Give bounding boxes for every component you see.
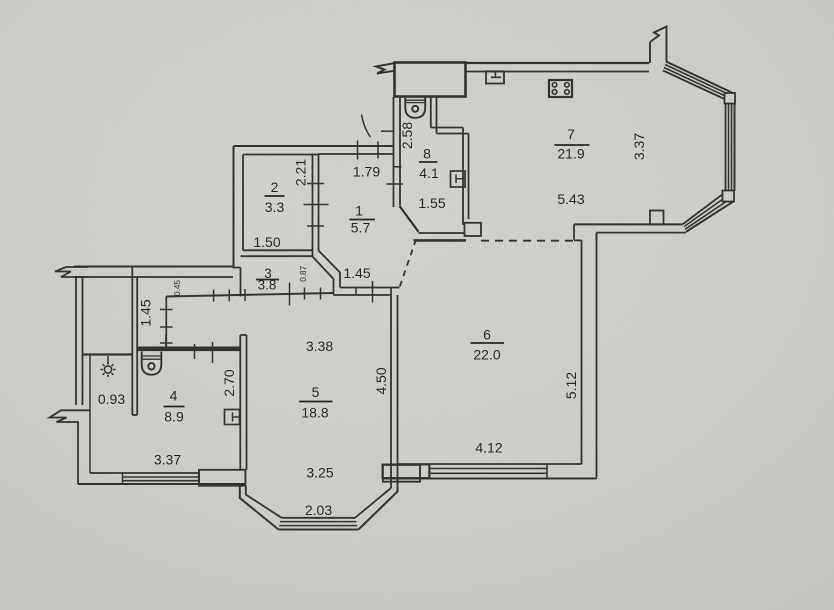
svg-text:4.50: 4.50 (373, 367, 389, 394)
svg-text:2: 2 (271, 179, 279, 195)
svg-text:0.93: 0.93 (98, 391, 125, 407)
svg-text:3.25: 3.25 (306, 465, 333, 481)
svg-text:1.45: 1.45 (138, 299, 154, 326)
svg-text:0.45: 0.45 (173, 280, 182, 296)
svg-text:5.43: 5.43 (557, 191, 584, 207)
svg-text:1.55: 1.55 (418, 195, 445, 211)
svg-text:4: 4 (170, 388, 178, 404)
svg-text:2.21: 2.21 (293, 159, 309, 186)
svg-text:18.8: 18.8 (301, 405, 328, 421)
svg-text:1.45: 1.45 (343, 265, 370, 281)
svg-text:1: 1 (355, 203, 363, 219)
svg-text:4.12: 4.12 (475, 440, 502, 456)
svg-text:4.1: 4.1 (419, 165, 439, 181)
svg-text:22.0: 22.0 (473, 347, 500, 363)
svg-text:0.87: 0.87 (299, 265, 308, 281)
svg-text:3.38: 3.38 (306, 338, 333, 354)
svg-text:5.7: 5.7 (351, 220, 371, 236)
svg-text:5.12: 5.12 (563, 372, 579, 399)
svg-text:21.9: 21.9 (557, 146, 584, 162)
svg-text:1.79: 1.79 (353, 164, 380, 180)
svg-text:3.37: 3.37 (154, 452, 181, 468)
svg-text:7: 7 (567, 126, 575, 142)
svg-text:5: 5 (312, 384, 320, 400)
svg-text:2.03: 2.03 (305, 502, 332, 518)
svg-text:3.37: 3.37 (631, 133, 647, 160)
svg-text:2.70: 2.70 (221, 369, 237, 396)
svg-text:8: 8 (423, 146, 431, 162)
svg-text:1.50: 1.50 (253, 234, 280, 250)
svg-text:3.3: 3.3 (265, 199, 285, 215)
svg-text:6: 6 (483, 327, 491, 343)
svg-text:8.9: 8.9 (164, 409, 184, 425)
svg-text:2.58: 2.58 (399, 122, 415, 149)
